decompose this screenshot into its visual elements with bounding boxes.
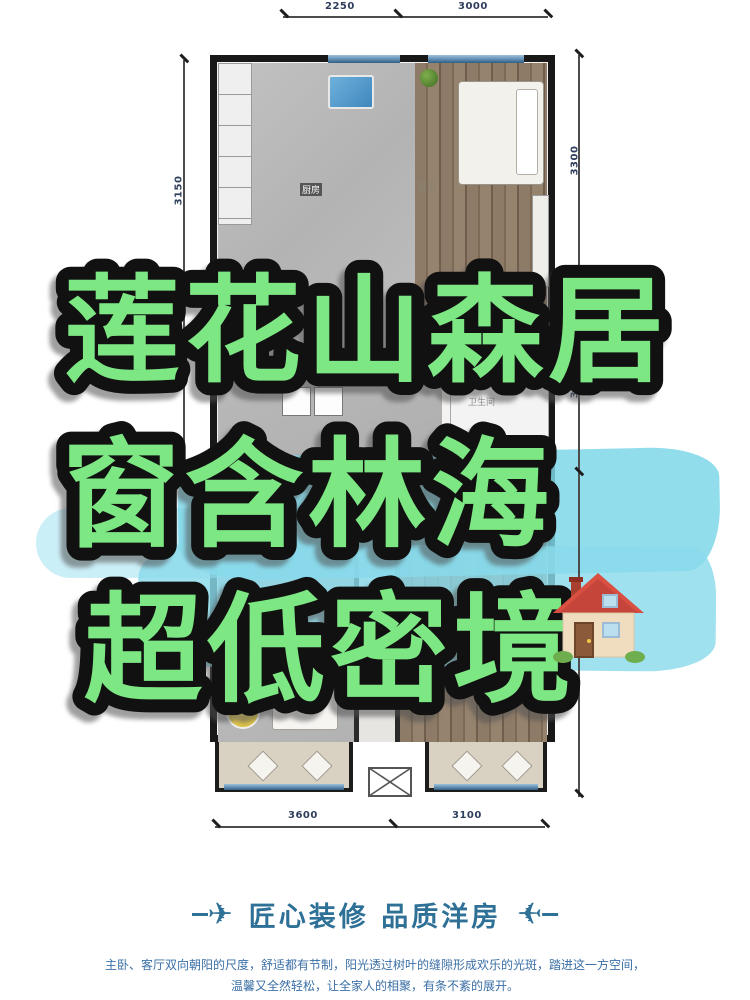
kitchen-cabinets (218, 63, 252, 225)
dim-right-upper: 3300 (569, 146, 580, 176)
description-paragraph-line-1: 主卧、客厅双向朝阳的尺度，舒适都有节制，阳光透过树叶的缝隙形成欢乐的光斑，踏进这… (55, 955, 695, 976)
bedroom-label: 卧室 (416, 180, 438, 193)
shaft-x-icon (368, 767, 412, 797)
window-icon (224, 784, 344, 790)
plant-icon (420, 69, 438, 87)
svg-text:窗含林海: 窗含林海 (62, 426, 554, 564)
paper-plane-icon-left: ✈ (192, 900, 233, 930)
tagline-row: ✈ 匠心装修 品质洋房 ✈ (0, 895, 750, 934)
dimension-line-bottom (215, 826, 545, 828)
window-icon (434, 784, 538, 790)
kitchen-label: 厨房 (300, 183, 322, 196)
dimension-line-top (283, 16, 548, 18)
title-line-1: 莲花山森居 莲花山森居 (0, 243, 750, 418)
tagline-text: 匠心装修 品质洋房 (249, 895, 501, 934)
window-icon (328, 55, 400, 63)
dim-bottom-right: 3100 (452, 810, 482, 821)
description-paragraph-line-2: 温馨又全然轻松，让全家人的相聚，有条不紊的展开。 (55, 976, 695, 997)
dim-top-left: 2250 (325, 1, 355, 12)
title-line-2: 窗含林海 窗含林海 (0, 410, 750, 585)
bed-pillow-icon (516, 89, 538, 175)
svg-text:超低密境: 超低密境 (84, 581, 576, 719)
kitchen-sink-icon (328, 75, 374, 109)
house-emoji (551, 571, 646, 663)
dim-bottom-left: 3600 (288, 810, 318, 821)
dim-left: 3150 (173, 176, 184, 206)
dim-top-right: 3000 (458, 1, 488, 12)
window-icon (428, 55, 524, 63)
paper-plane-icon-right: ✈ (517, 900, 558, 930)
svg-text:莲花山森居: 莲花山森居 (64, 264, 669, 399)
